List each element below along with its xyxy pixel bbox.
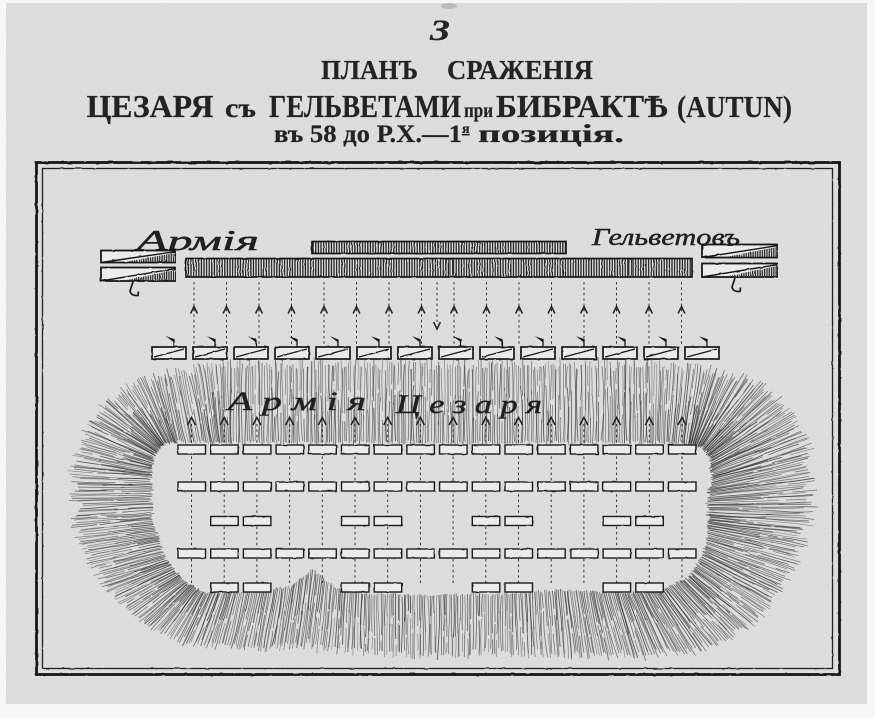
svg-text:А р м і я: А р м і я	[225, 387, 366, 416]
svg-text:СРАЖЕНІЯ: СРАЖЕНІЯ	[447, 55, 593, 85]
svg-text:при: при	[464, 100, 493, 122]
svg-text:я: я	[462, 122, 470, 137]
svg-text:(AUTUN): (AUTUN)	[677, 89, 792, 124]
svg-text:ПЛАНЪ: ПЛАНЪ	[321, 55, 418, 85]
svg-text:съ: съ	[225, 93, 256, 123]
svg-text:позиція.: позиція.	[478, 121, 624, 148]
svg-text:ГЕЛЬВЕТАМИ: ГЕЛЬВЕТАМИ	[269, 88, 461, 124]
svg-text:БИБРАКТѢ: БИБРАКТѢ	[496, 88, 668, 124]
svg-text:ЦЕЗАРЯ: ЦЕЗАРЯ	[87, 88, 214, 124]
svg-text:въ 58 до Р.Х.—1: въ 58 до Р.Х.—1	[274, 121, 462, 148]
svg-text:3: 3	[429, 14, 450, 47]
svg-text:Ц е з а р я: Ц е з а р я	[395, 390, 542, 419]
